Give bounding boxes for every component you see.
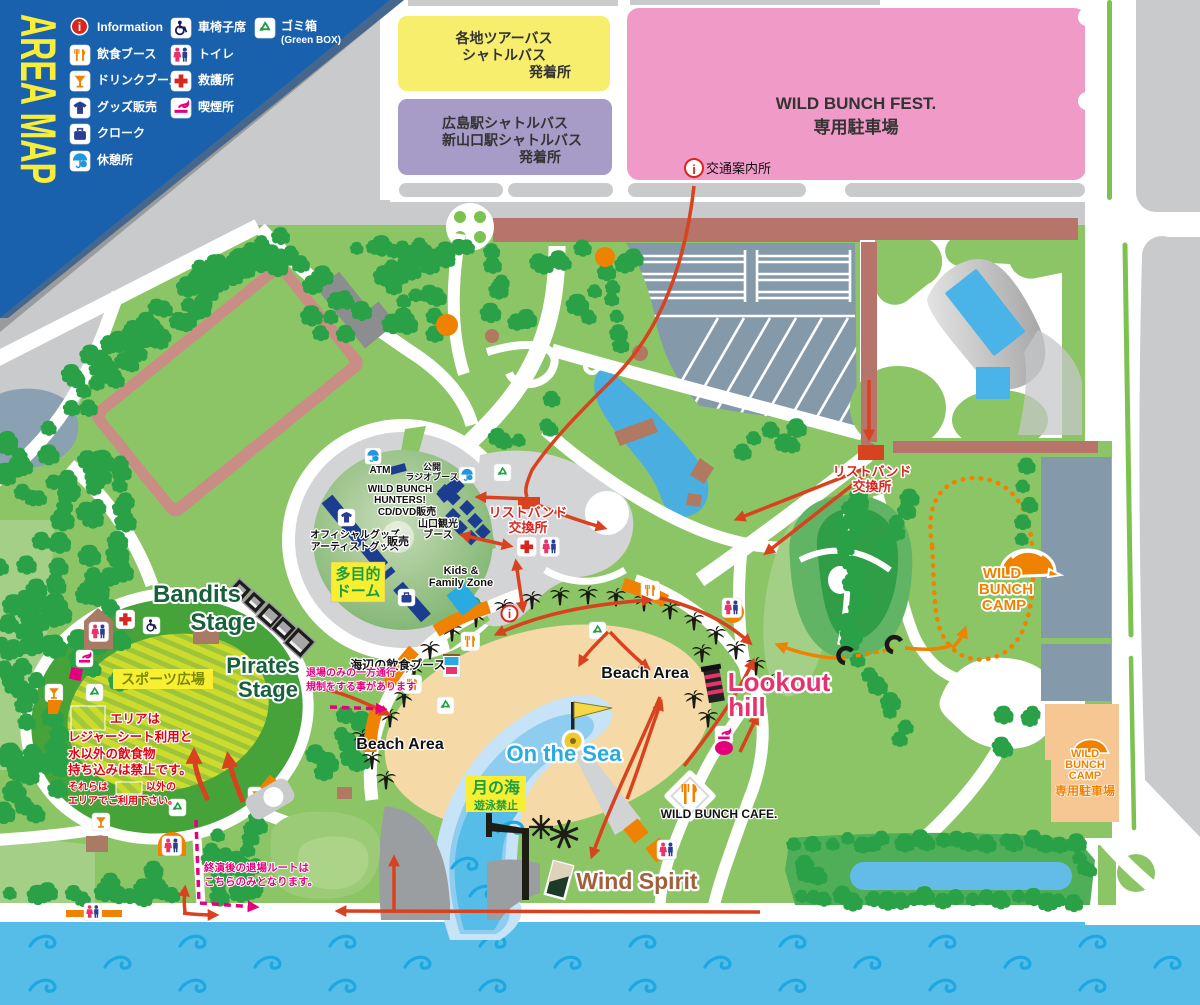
svg-text:ATM: ATM <box>370 465 391 476</box>
svg-text:Kids &: Kids & <box>444 565 479 577</box>
svg-text:Information: Information <box>97 20 163 34</box>
svg-text:クローク: クローク <box>97 126 145 140</box>
svg-text:AREA MAP: AREA MAP <box>10 14 66 184</box>
svg-text:月の海: 月の海 <box>471 778 520 797</box>
svg-text:Beach Area: Beach Area <box>601 665 689 682</box>
svg-text:以外の: 以外の <box>146 780 176 793</box>
svg-text:水以外の飲食物: 水以外の飲食物 <box>68 746 156 761</box>
svg-text:Wind Spirit: Wind Spirit <box>576 868 698 894</box>
svg-text:飲食ブース: 飲食ブース <box>96 46 156 61</box>
svg-text:WILD BUNCH: WILD BUNCH <box>368 484 432 495</box>
svg-text:規制をする事があります: 規制をする事があります <box>306 680 416 693</box>
svg-text:シャトルバス: シャトルバス <box>462 47 546 63</box>
svg-text:リストバンド: リストバンド <box>489 505 568 520</box>
svg-text:遊泳禁止: 遊泳禁止 <box>474 798 518 812</box>
svg-text:ゴミ箱: ゴミ箱 <box>281 18 317 33</box>
svg-text:新山口駅シャトルバス: 新山口駅シャトルバス <box>442 132 582 148</box>
svg-text:退場のみの一方通行: 退場のみの一方通行 <box>306 666 396 679</box>
svg-text:公開: 公開 <box>423 462 441 472</box>
svg-text:トイレ: トイレ <box>198 47 234 61</box>
svg-text:CAMP: CAMP <box>1069 770 1101 782</box>
svg-text:喫煙所: 喫煙所 <box>198 99 234 114</box>
svg-text:エリアでご利用下さい。: エリアでご利用下さい。 <box>68 794 178 807</box>
svg-text:交通案内所: 交通案内所 <box>706 161 771 176</box>
svg-text:交換所: 交換所 <box>852 479 891 494</box>
svg-text:WILD: WILD <box>983 565 1021 582</box>
svg-text:各地ツアーバス: 各地ツアーバス <box>454 30 552 46</box>
svg-text:発着所: 発着所 <box>518 149 561 165</box>
svg-text:発着所: 発着所 <box>528 64 571 80</box>
svg-text:Beach Area: Beach Area <box>356 736 444 753</box>
svg-text:それらは: それらは <box>68 781 108 793</box>
svg-text:Pirates: Pirates <box>226 653 299 678</box>
svg-text:Stage: Stage <box>238 677 298 702</box>
svg-text:Stage: Stage <box>190 609 255 636</box>
svg-text:専用駐車場: 専用駐車場 <box>814 117 899 137</box>
svg-text:車椅子席: 車椅子席 <box>198 19 246 34</box>
svg-text:i: i <box>78 20 81 34</box>
svg-text:スポーツ広場: スポーツ広場 <box>121 671 205 687</box>
svg-text:レジャーシート利用と: レジャーシート利用と <box>68 729 192 744</box>
svg-text:交換所: 交換所 <box>508 520 547 535</box>
svg-text:ラジオブース: ラジオブース <box>405 471 458 482</box>
svg-text:多目的: 多目的 <box>335 565 380 583</box>
svg-text:BUNCH: BUNCH <box>979 581 1033 598</box>
svg-text:リストバンド: リストバンド <box>833 464 912 479</box>
svg-text:WILD BUNCH CAFE.: WILD BUNCH CAFE. <box>661 807 778 821</box>
svg-text:持ち込みは禁止です。: 持ち込みは禁止です。 <box>68 762 192 777</box>
svg-text:専用駐車場: 専用駐車場 <box>1055 783 1115 798</box>
svg-text:ブース: ブース <box>423 528 453 541</box>
svg-text:WILD BUNCH FEST.: WILD BUNCH FEST. <box>776 94 937 113</box>
svg-text:広島駅シャトルバス: 広島駅シャトルバス <box>442 115 568 131</box>
svg-text:ドリンクブース: ドリンクブース <box>97 72 180 87</box>
svg-text:休憩所: 休憩所 <box>96 152 133 167</box>
svg-text:On the Sea: On the Sea <box>507 741 623 766</box>
svg-text:こちらのみとなります。: こちらのみとなります。 <box>204 876 318 888</box>
svg-text:救護所: 救護所 <box>198 72 234 87</box>
svg-text:hill: hill <box>728 692 766 722</box>
svg-text:グッズ販売: グッズ販売 <box>97 99 157 114</box>
svg-text:山口観光: 山口観光 <box>418 517 458 530</box>
svg-text:終演後の退場ルートは: 終演後の退場ルートは <box>204 861 309 874</box>
svg-text:販売: 販売 <box>387 534 409 548</box>
svg-text:CAMP: CAMP <box>982 597 1026 614</box>
svg-text:(Green BOX): (Green BOX) <box>281 35 341 46</box>
svg-text:Family Zone: Family Zone <box>429 577 493 589</box>
svg-text:エリアは: エリアは <box>110 712 161 726</box>
svg-text:Bandits: Bandits <box>153 581 241 608</box>
svg-text:ドーム: ドーム <box>336 583 381 600</box>
svg-text:HUNTERS!: HUNTERS! <box>374 495 426 506</box>
svg-text:CD/DVD販売: CD/DVD販売 <box>378 505 436 518</box>
svg-text:i: i <box>692 162 696 177</box>
